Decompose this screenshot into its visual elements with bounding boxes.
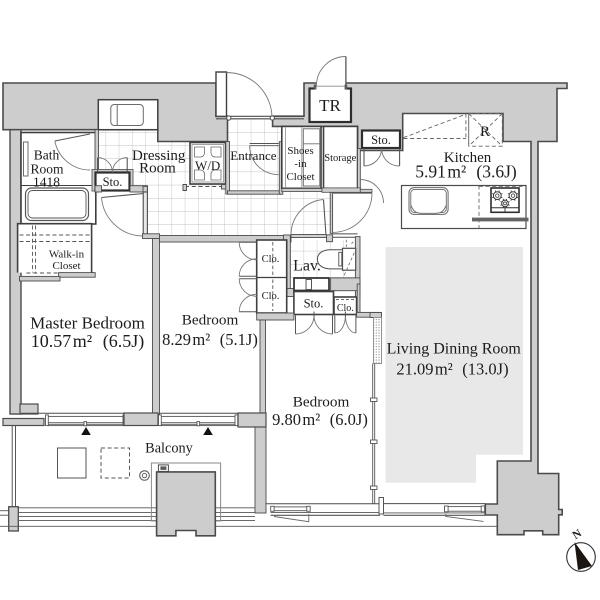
svg-text:9.80 m² (6.0J): 9.80 m² (6.0J)	[272, 410, 368, 429]
svg-text:Clo.: Clo.	[262, 291, 280, 302]
svg-text:Closet: Closet	[286, 171, 314, 183]
svg-text:Clo.: Clo.	[337, 303, 354, 314]
svg-text:Entrance: Entrance	[230, 148, 276, 163]
svg-text:Living Dining Room: Living Dining Room	[387, 341, 522, 358]
svg-text:TR: TR	[319, 96, 341, 115]
svg-text:Closet: Closet	[52, 260, 80, 272]
svg-text:W/D: W/D	[195, 158, 220, 173]
svg-text:Room: Room	[139, 161, 176, 177]
svg-text:-in: -in	[294, 158, 307, 170]
svg-text:Walk-in: Walk-in	[49, 249, 85, 261]
svg-text:R: R	[480, 124, 490, 140]
svg-text:Sto.: Sto.	[371, 133, 391, 147]
svg-text:Bedroom: Bedroom	[293, 394, 350, 411]
svg-text:Bedroom: Bedroom	[182, 312, 239, 329]
svg-text:Shoes: Shoes	[287, 145, 313, 157]
svg-text:5.91 m² (3.6J): 5.91 m² (3.6J)	[415, 162, 517, 182]
svg-text:10.57 m² (6.5J): 10.57 m² (6.5J)	[31, 331, 144, 352]
svg-text:Lav.: Lav.	[293, 258, 321, 275]
svg-text:Clo.: Clo.	[262, 254, 280, 265]
svg-text:8.29 m² (5.1J): 8.29 m² (5.1J)	[162, 330, 258, 349]
svg-text:21.09 m² (13.0J): 21.09 m² (13.0J)	[396, 360, 508, 379]
svg-text:Storage: Storage	[324, 153, 356, 164]
svg-text:Master Bedroom: Master Bedroom	[30, 314, 145, 333]
svg-text:Sto.: Sto.	[103, 175, 123, 189]
svg-text:Bath: Bath	[34, 148, 60, 163]
svg-text:1418: 1418	[33, 175, 60, 190]
svg-text:Balcony: Balcony	[145, 441, 193, 457]
svg-text:Sto.: Sto.	[304, 297, 324, 311]
